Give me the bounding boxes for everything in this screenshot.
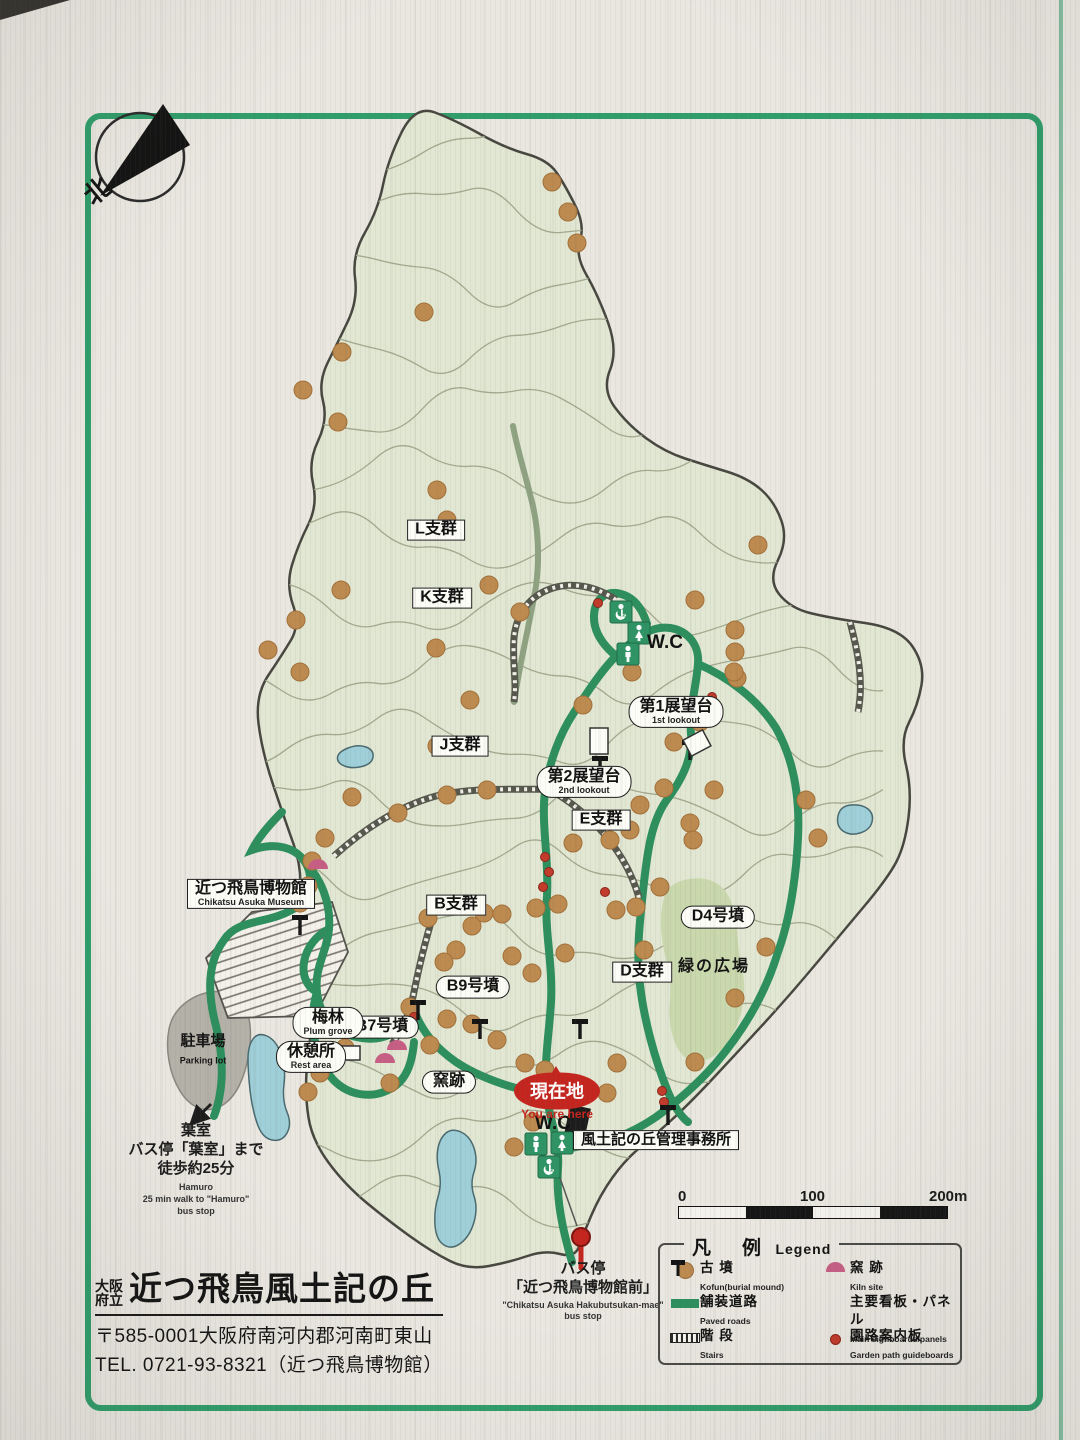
paved-road-icon: [670, 1296, 700, 1308]
address: 〒585-0001大阪府南河内郡河南町東山: [95, 1321, 443, 1348]
label-admin-office: 風土記の丘管理事務所: [573, 1130, 739, 1150]
label-museum: 近つ飛鳥博物館 Chikatsu Asuka Museum: [187, 879, 315, 909]
scale-bar: 0 100 200m: [678, 1188, 948, 1219]
label-l-group: L支群: [407, 520, 465, 541]
label-d-group: D支群: [612, 962, 672, 983]
park-title: 近つ飛鳥風土記の丘: [129, 1262, 435, 1310]
scale-bar-segments: [678, 1206, 948, 1219]
you-are-here-en: You are here: [521, 1107, 593, 1121]
phone: TEL. 0721-93-8321（近つ飛鳥博物館）: [95, 1350, 443, 1377]
you-are-here-badge: 現在地: [514, 1073, 600, 1110]
label-lookout1: 第1展望台 1st lookout: [629, 696, 724, 728]
legend-box: 凡 例 Legend 古 墳 Kofun(burial mound) 窯 跡 K…: [658, 1243, 962, 1365]
scale-0: 0: [678, 1188, 686, 1205]
legend-item-signboards: 主要看板・パネル Main signboards/panels: [820, 1293, 956, 1327]
label-d4: D4号墳: [681, 906, 755, 929]
stairs-icon: [670, 1330, 700, 1343]
hamuro-note: 葉室 バス停「葉室」まで 徒歩約25分 Hamuro 25 min walk t…: [128, 1122, 263, 1217]
museum-bus-stop-note: バス停 「近つ飛鳥博物館前」 "Chikatsu Asuka Hakubutsu…: [502, 1260, 663, 1323]
legend-title: 凡 例 Legend: [684, 1233, 839, 1260]
label-b9: B9号墳: [436, 976, 510, 999]
legend-item-guideboards: 園路案内板 Garden path guideboards: [820, 1327, 956, 1361]
label-rest-area: 休憩所 Rest area: [276, 1041, 346, 1073]
legend-item-stairs: 階 段 Stairs: [670, 1327, 818, 1361]
kiln-dome-icon: [820, 1262, 850, 1272]
park-map-sign: 北 L支群 K支群 J支群 B支群 E支群 D支群 B9号墳 B7号墳 D4号墳…: [0, 0, 1080, 1440]
label-plum-grove: 梅林 Plum grove: [292, 1007, 363, 1039]
label-j-group: J支群: [432, 736, 489, 757]
label-b-group: B支群: [426, 895, 486, 916]
label-kiln-site: 窯跡: [422, 1071, 476, 1094]
label-e-group: E支群: [572, 810, 631, 831]
label-wc-top: W.C: [647, 632, 683, 654]
label-lookout2: 第2展望台 2nd lookout: [537, 766, 632, 798]
legend-item-kiln: 窯 跡 Kiln site: [820, 1259, 956, 1293]
legend-item-paved-roads: 舗装道路 Paved roads: [670, 1293, 818, 1327]
legend-item-kofun: 古 墳 Kofun(burial mound): [670, 1259, 818, 1293]
scale-200m: 200m: [929, 1188, 967, 1205]
label-k-group: K支群: [412, 588, 472, 609]
guideboard-icon: [820, 1330, 850, 1345]
label-parking: 駐車場 Parking lot: [180, 1030, 227, 1069]
sign-title-block: 大阪 府立 近つ飛鳥風土記の丘 〒585-0001大阪府南河内郡河南町東山 TE…: [95, 1262, 443, 1377]
scale-100: 100: [800, 1188, 825, 1205]
label-green-plaza: 緑の広場: [678, 952, 750, 976]
prefecture-prefix: 大阪 府立: [95, 1279, 123, 1307]
